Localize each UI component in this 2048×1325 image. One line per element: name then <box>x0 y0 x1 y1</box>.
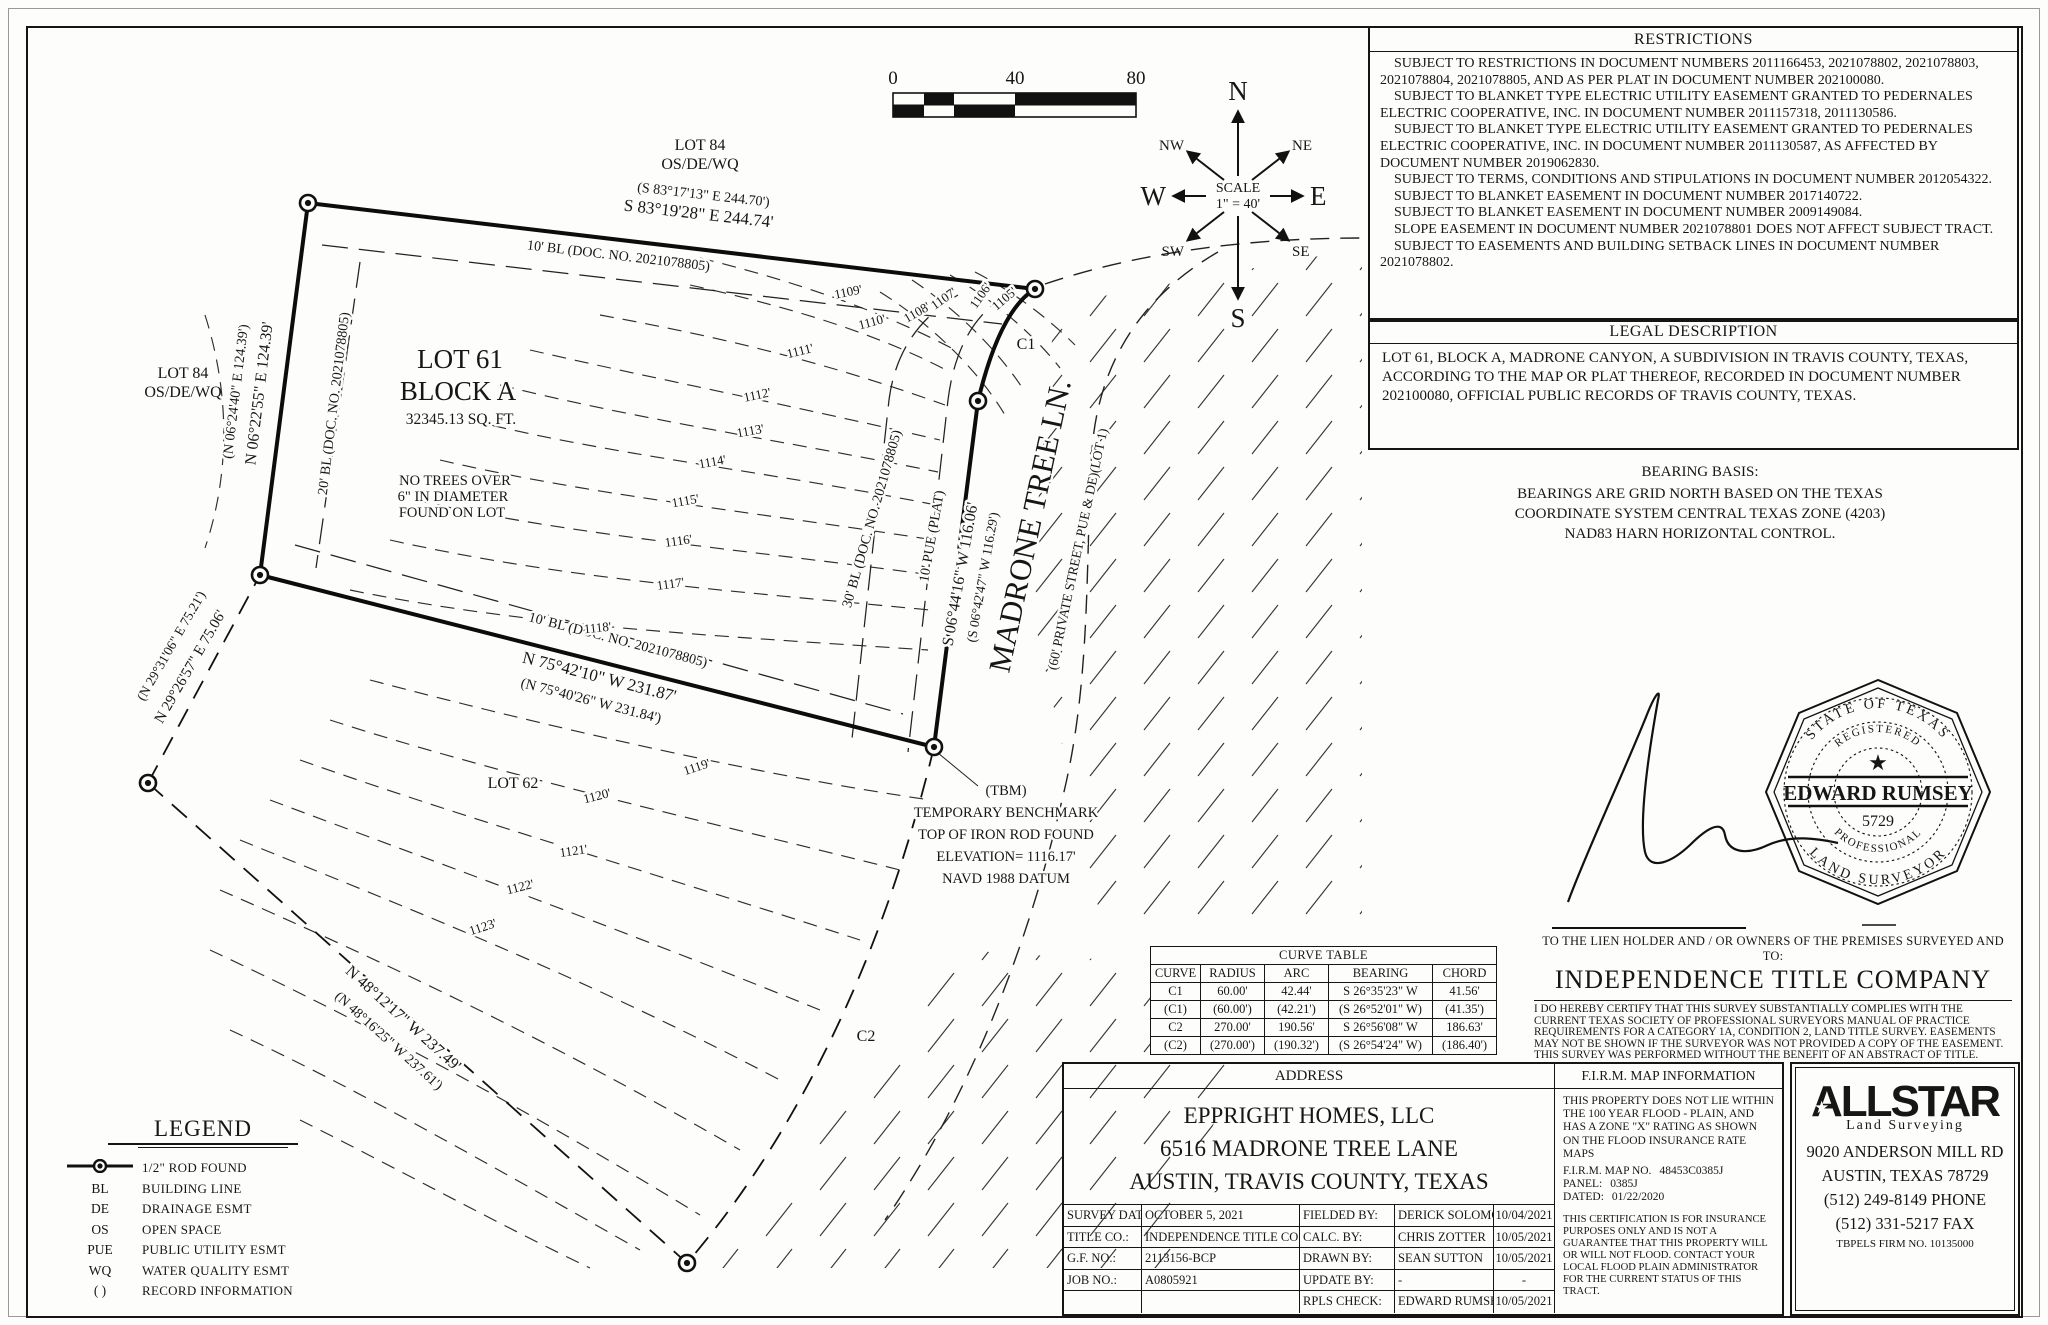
curve-cell: C2 <box>1151 1019 1201 1037</box>
address-city: AUSTIN, TRAVIS COUNTY, TEXAS <box>1064 1165 1554 1198</box>
restrictions-title: RESTRICTIONS <box>1370 28 2017 52</box>
contour-label: 1107' <box>928 284 959 312</box>
restriction-item: SUBJECT TO BLANKET EASEMENT IN DOCUMENT … <box>1380 189 2007 206</box>
curve-cell: (S 26°52'01" W) <box>1329 1001 1433 1019</box>
legend-item-code: PUE <box>58 1242 142 1258</box>
scale-tick-40: 40 <box>1006 68 1025 89</box>
restriction-item: SUBJECT TO BLANKET TYPE ELECTRIC UTILITY… <box>1380 122 2007 172</box>
restrictions-body: SUBJECT TO RESTRICTIONS IN DOCUMENT NUMB… <box>1370 52 2017 272</box>
tbm-leader-line <box>938 753 978 786</box>
firm-panel-value: 0385J <box>1610 1178 1637 1191</box>
info-label: FIELDED BY: <box>1300 1205 1395 1227</box>
compass-n-label: N <box>1228 76 1248 106</box>
firm-map-number: 48453C0385J <box>1659 1165 1723 1178</box>
restriction-item: SLOPE EASEMENT IN DOCUMENT NUMBER 202107… <box>1380 222 2007 239</box>
allstar-logo-text: ALLSTAR <box>1811 1082 1999 1122</box>
title-company-name: INDEPENDENCE TITLE COMPANY <box>1534 965 2012 995</box>
legend-title: LEGEND <box>108 1116 298 1145</box>
contour-label: 1121' <box>559 841 589 860</box>
info-date: 10/04/2021 <box>1494 1205 1554 1227</box>
info-label: SURVEY DATE: <box>1064 1205 1142 1227</box>
curve-cell: (190.32') <box>1265 1037 1329 1055</box>
lot-area-label: 32345.13 SQ. FT. <box>406 411 516 428</box>
info-label <box>1064 1291 1142 1313</box>
legal-description-title: LEGAL DESCRIPTION <box>1370 320 2017 344</box>
contour-label: 1109' <box>833 281 863 301</box>
curve-cell: (C2) <box>1151 1037 1201 1055</box>
curve-table-header: CHORD <box>1433 965 1497 983</box>
pue-label: 10' PUE (PLAT) <box>917 489 948 583</box>
legend-item-label: WATER QUALITY ESMT <box>142 1263 289 1279</box>
no-trees-note-1: NO TREES OVER <box>399 473 511 489</box>
curve-table-header: CURVE <box>1151 965 1201 983</box>
bearing-basis-line: NAD83 HARN HORIZONTAL CONTROL. <box>1420 524 1980 544</box>
survey-sheet: 0 40 80 N S W E NW NE SW S <box>0 0 2048 1325</box>
curve-cell: (41.35') <box>1433 1001 1497 1019</box>
lot62-label: LOT 62 <box>488 775 539 792</box>
restriction-item: SUBJECT TO BLANKET TYPE ELECTRIC UTILITY… <box>1380 89 2007 122</box>
surveyor-seal: STATE OF TEXAS REGISTERED PROFESSIONAL L… <box>1766 680 1990 904</box>
curve-cell: (186.40') <box>1433 1037 1497 1055</box>
legend-item-label: 1/2" ROD FOUND <box>142 1160 247 1176</box>
curve-cell: 60.00' <box>1201 983 1265 1001</box>
surveyor-company-box: ALLSTAR ★ Land Surveying 9020 ANDERSON M… <box>1790 1062 2020 1316</box>
curve-table-row: C2 270.00' 190.56' S 26°56'08" W 186.63' <box>1151 1019 1497 1037</box>
info-value: DERICK SOLOMON <box>1395 1205 1494 1227</box>
allstar-logo: ALLSTAR ★ Land Surveying <box>1811 1082 1999 1134</box>
compass-se-label: SE <box>1292 244 1310 260</box>
info-label: JOB NO.: <box>1064 1270 1142 1292</box>
legend-item: WQ WATER QUALITY ESMT <box>58 1261 378 1282</box>
title-block: ADDRESS F.I.R.M. MAP INFORMATION EPPRIGH… <box>1062 1062 1784 1316</box>
svg-text:STATE OF TEXAS: STATE OF TEXAS <box>1803 697 1952 743</box>
building-line-west-label: 20' BL (DOC. NO. 2021078805) <box>316 311 353 496</box>
company-firm-number: TBPELS FIRM NO. 10135000 <box>1796 1238 2014 1250</box>
compass-nw-label: NW <box>1159 138 1185 154</box>
company-addr-line: AUSTIN, TEXAS 78729 <box>1796 1164 2014 1188</box>
no-trees-note-3: FOUND ON LOT <box>399 505 505 521</box>
legal-description-text: LOT 61, BLOCK A, MADRONE CANYON, A SUBDI… <box>1370 344 2017 406</box>
address-header: ADDRESS <box>1064 1064 1555 1088</box>
info-value: INDEPENDENCE TITLE CO. <box>1142 1227 1300 1249</box>
legend-item-code: WQ <box>58 1263 142 1279</box>
legend-item: OS OPEN SPACE <box>58 1220 378 1241</box>
tbm-note-5: NAVD 1988 DATUM <box>942 871 1070 887</box>
info-date: 10/05/2021 <box>1494 1291 1554 1313</box>
legend-item: DE DRAINAGE ESMT <box>58 1199 378 1220</box>
lot62-line-n29 <box>148 575 260 783</box>
seal-star-icon: ★ <box>1868 750 1888 775</box>
building-line-top-label: 10' BL (DOC. NO. 2021078805) <box>526 238 711 274</box>
block-a-label: BLOCK A <box>400 376 517 406</box>
contour-label: 1118' <box>583 619 612 637</box>
certification-text: I DO HEREBY CERTIFY THAT THIS SURVEY SUB… <box>1534 1000 2012 1062</box>
contour-label: 1117' <box>656 574 685 593</box>
curve-cell: (42.21') <box>1265 1001 1329 1019</box>
tbm-note-1: (TBM) <box>985 783 1026 799</box>
info-date: - <box>1494 1270 1554 1292</box>
info-value: A0805921 <box>1142 1270 1300 1292</box>
contour-label: 1110' <box>857 311 887 333</box>
compass-e-label: E <box>1310 181 1327 211</box>
curve-table-row: (C2) (270.00') (190.32') (S 26°54'24" W)… <box>1151 1037 1497 1055</box>
seal-state-text: STATE OF TEXAS <box>1803 697 1952 743</box>
svg-text:REGISTERED: REGISTERED <box>1832 723 1923 750</box>
legal-description-box: LEGAL DESCRIPTION LOT 61, BLOCK A, MADRO… <box>1368 318 2019 450</box>
legend-item: ( ) RECORD INFORMATION <box>58 1281 378 1302</box>
legend-item-label: PUBLIC UTILITY ESMT <box>142 1242 286 1258</box>
curve-c2-label: C2 <box>857 1028 876 1045</box>
info-label: G.F. NO.: <box>1064 1248 1142 1270</box>
scale-bar: 0 40 80 <box>888 68 1145 117</box>
certification-block: TO THE LIEN HOLDER AND / OR OWNERS OF TH… <box>1534 934 2012 1062</box>
curve-table-header: BEARING <box>1329 965 1433 983</box>
firm-info: THIS PROPERTY DOES NOT LIE WITHIN THE 10… <box>1555 1089 1782 1313</box>
firm-disclaimer: THIS CERTIFICATION IS FOR INSURANCE PURP… <box>1563 1214 1775 1298</box>
restriction-item: SUBJECT TO TERMS, CONDITIONS AND STIPULA… <box>1380 172 2007 189</box>
firm-dated-label: DATED: <box>1563 1191 1604 1204</box>
star-icon: ★ <box>1814 1098 1829 1118</box>
property-address: EPPRIGHT HOMES, LLC 6516 MADRONE TREE LA… <box>1064 1089 1554 1205</box>
legend-item-code: ( ) <box>58 1283 142 1299</box>
seal-registered-text: REGISTERED <box>1832 723 1923 750</box>
scale-tick-80: 80 <box>1127 68 1146 89</box>
curve-table-header: RADIUS <box>1201 965 1265 983</box>
lot84-left-label: LOT 84 <box>158 365 209 382</box>
tbm-note-4: ELEVATION= 1116.17' <box>936 849 1075 865</box>
contour-label: 1115' <box>670 491 700 511</box>
contour-label: 1120' <box>582 785 613 806</box>
scale-tick-0: 0 <box>888 68 898 89</box>
legend-item-code: BL <box>58 1181 142 1197</box>
surveyor-signature <box>1552 694 1896 928</box>
firm-header: F.I.R.M. MAP INFORMATION <box>1555 1064 1782 1088</box>
lot84-left-esmt-label: OS/DE/WQ <box>144 384 222 401</box>
lot84-top-label: LOT 84 <box>675 137 726 154</box>
contour-label: 1122' <box>505 876 536 897</box>
rod-found-symbol <box>58 1159 142 1177</box>
info-label: TITLE CO.: <box>1064 1227 1142 1249</box>
lot84-top-esmt-label: OS/DE/WQ <box>661 156 739 173</box>
survey-info-grid: SURVEY DATE: OCTOBER 5, 2021 FIELDED BY:… <box>1064 1205 1554 1313</box>
tbm-note-3: TOP OF IRON ROD FOUND <box>918 827 1094 843</box>
legend-item-label: OPEN SPACE <box>142 1222 221 1238</box>
info-date: 10/05/2021 <box>1494 1248 1554 1270</box>
legend-item-code: OS <box>58 1222 142 1238</box>
legend-item-code: DE <box>58 1201 142 1217</box>
curve-cell: S 26°56'08" W <box>1329 1019 1433 1037</box>
legend-title-rule <box>138 1147 288 1148</box>
no-trees-note-2: 6" IN DIAMETER <box>398 489 509 505</box>
legend-item: BL BUILDING LINE <box>58 1179 378 1200</box>
info-label: CALC. BY: <box>1300 1227 1395 1249</box>
contour-label: 1119' <box>681 755 712 778</box>
curve-cell: 190.56' <box>1265 1019 1329 1037</box>
info-value: 2113156-BCP <box>1142 1248 1300 1270</box>
bearing-basis-note: BEARING BASIS: BEARINGS ARE GRID NORTH B… <box>1420 462 1980 544</box>
info-value: CHRIS ZOTTER <box>1395 1227 1494 1249</box>
curve-table-header: ARC <box>1265 965 1329 983</box>
curve-table-row: (C1) (60.00') (42.21') (S 26°52'01" W) (… <box>1151 1001 1497 1019</box>
curve-c1-label: C1 <box>1017 336 1036 353</box>
legend-item: PUE PUBLIC UTILITY ESMT <box>58 1240 378 1261</box>
restriction-item: SUBJECT TO RESTRICTIONS IN DOCUMENT NUMB… <box>1380 56 2007 89</box>
compass-ne-label: NE <box>1292 138 1312 154</box>
compass-scale-word: SCALE <box>1216 181 1260 196</box>
compass-s-label: S <box>1230 303 1245 333</box>
curve-cell: (C1) <box>1151 1001 1201 1019</box>
bearing-basis-title: BEARING BASIS: <box>1420 462 1980 482</box>
restrictions-box: RESTRICTIONS SUBJECT TO RESTRICTIONS IN … <box>1368 26 2019 322</box>
curve-cell: 42.44' <box>1265 983 1329 1001</box>
info-date: 10/05/2021 <box>1494 1227 1554 1249</box>
contour-label: 1123' <box>467 915 498 938</box>
info-value: - <box>1395 1270 1494 1292</box>
address-owner: EPPRIGHT HOMES, LLC <box>1064 1099 1554 1132</box>
curve-cell: (60.00') <box>1201 1001 1265 1019</box>
compass-scale-value: 1" = 40' <box>1216 197 1260 212</box>
bearing-basis-line: COORDINATE SYSTEM CENTRAL TEXAS ZONE (42… <box>1420 504 1980 524</box>
curve-cell: 186.63' <box>1433 1019 1497 1037</box>
legend-item-label: RECORD INFORMATION <box>142 1283 293 1299</box>
address-street: 6516 MADRONE TREE LANE <box>1064 1132 1554 1165</box>
rod-found-glyph <box>65 1159 135 1173</box>
contour-label: 1113' <box>735 421 765 441</box>
info-label: RPLS CHECK: <box>1300 1291 1395 1313</box>
info-value: EDWARD RUMSEY <box>1395 1291 1494 1313</box>
firm-flood-statement: THIS PROPERTY DOES NOT LIE WITHIN THE 10… <box>1563 1095 1775 1161</box>
curve-table-title: CURVE TABLE <box>1151 947 1497 965</box>
surveyor-company-address: 9020 ANDERSON MILL RD AUSTIN, TEXAS 7872… <box>1796 1140 2014 1236</box>
info-value: SEAN SUTTON <box>1395 1248 1494 1270</box>
curve-cell: 41.56' <box>1433 983 1497 1001</box>
surveyor-company-inner: ALLSTAR ★ Land Surveying 9020 ANDERSON M… <box>1795 1067 2015 1311</box>
firm-map-label: F.I.R.M. MAP NO. <box>1563 1165 1651 1178</box>
seal-surveyor-name: EDWARD RUMSEY <box>1783 781 1973 805</box>
firm-panel-label: PANEL: <box>1563 1178 1602 1191</box>
seal-license-number: 5729 <box>1862 813 1894 830</box>
curve-table: CURVE TABLE CURVE RADIUS ARC BEARING CHO… <box>1150 946 1497 1055</box>
legend-item-label: BUILDING LINE <box>142 1181 242 1197</box>
company-phone: (512) 249-8149 PHONE <box>1796 1188 2014 1212</box>
firm-dated-value: 01/22/2020 <box>1612 1191 1664 1204</box>
curve-cell: (270.00') <box>1201 1037 1265 1055</box>
info-value: OCTOBER 5, 2021 <box>1142 1205 1300 1227</box>
company-fax: (512) 331-5217 FAX <box>1796 1212 2014 1236</box>
info-label: UPDATE BY: <box>1300 1270 1395 1292</box>
restriction-item: SUBJECT TO EASEMENTS AND BUILDING SETBAC… <box>1380 239 2007 272</box>
restriction-item: SUBJECT TO BLANKET EASEMENT IN DOCUMENT … <box>1380 205 2007 222</box>
compass-sw-label: SW <box>1162 244 1185 260</box>
legend-item: 1/2" ROD FOUND <box>58 1158 378 1179</box>
info-value <box>1142 1291 1300 1313</box>
tbm-note-2: TEMPORARY BENCHMARK <box>914 805 1099 821</box>
lot61-label: LOT 61 <box>417 344 503 374</box>
compass-w-label: W <box>1141 181 1167 211</box>
curve-table-row: C1 60.00' 42.44' S 26°35'23" W 41.56' <box>1151 983 1497 1001</box>
curve-cell: C1 <box>1151 983 1201 1001</box>
legend-item-label: DRAINAGE ESMT <box>142 1201 252 1217</box>
seal-professional-text: PROFESSIONAL <box>1832 826 1924 855</box>
lien-holder-line: TO THE LIEN HOLDER AND / OR OWNERS OF TH… <box>1534 934 2012 964</box>
info-label: DRAWN BY: <box>1300 1248 1395 1270</box>
curve-cell: (S 26°54'24" W) <box>1329 1037 1433 1055</box>
company-addr-line: 9020 ANDERSON MILL RD <box>1796 1140 2014 1164</box>
bearing-basis-line: BEARINGS ARE GRID NORTH BASED ON THE TEX… <box>1420 484 1980 504</box>
contour-label: 1111' <box>785 340 815 361</box>
svg-text:PROFESSIONAL: PROFESSIONAL <box>1832 826 1924 855</box>
curve-cell: 270.00' <box>1201 1019 1265 1037</box>
contour-label: 1108' <box>901 299 933 326</box>
legend: LEGEND 1/2" ROD FOUND BL BUILDING LINE D… <box>58 1116 378 1302</box>
contour-label: 1116' <box>664 531 693 550</box>
curve-cell: S 26°35'23" W <box>1329 983 1433 1001</box>
